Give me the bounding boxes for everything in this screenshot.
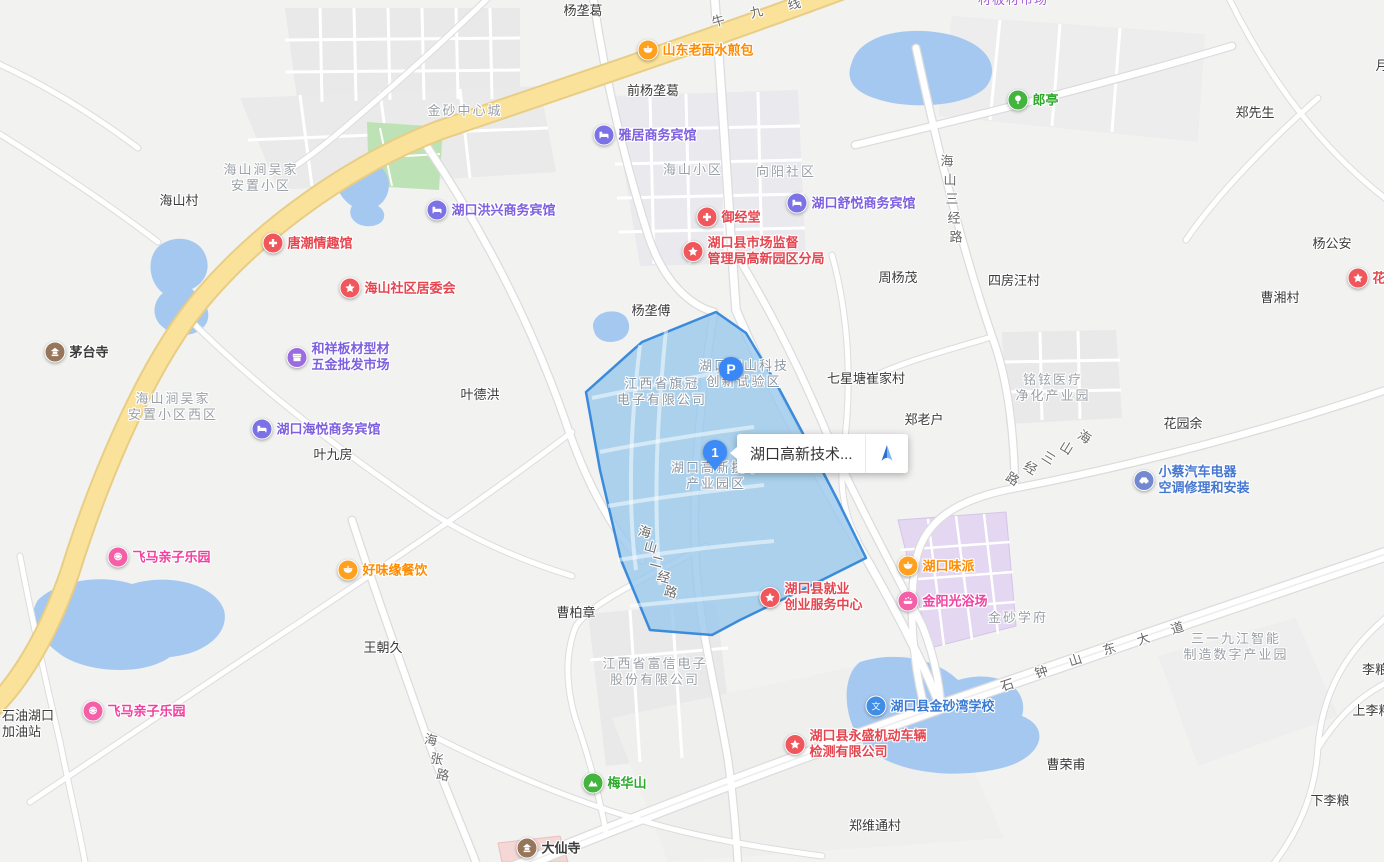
car-icon <box>1134 470 1155 491</box>
place-label: 海山村 <box>159 193 198 209</box>
area-label: 向阳社区 <box>756 164 816 180</box>
area-label: 海山涧吴家安置小区 <box>223 162 298 194</box>
poi-label: 唐潮情趣馆 <box>288 235 353 251</box>
road-label-char: 经 <box>947 208 960 227</box>
area-label: 金砂学府 <box>988 610 1048 626</box>
svg-text:文: 文 <box>871 701 880 712</box>
poi-label: 湖口味派 <box>923 558 975 574</box>
poi-hotel[interactable]: 湖口洪兴商务宾馆 <box>427 200 556 221</box>
star-icon <box>1348 268 1369 289</box>
star-icon <box>785 734 806 755</box>
place-label: 杨垄葛 <box>563 3 602 19</box>
road-label-char: 海 <box>1074 424 1095 447</box>
area-label: 铭铉医疗净化产业园 <box>1015 372 1090 404</box>
road-label-char: 钟 <box>1032 660 1050 682</box>
place-label: 四房汪村 <box>988 273 1040 289</box>
cross-icon <box>263 233 284 254</box>
area-label: 江西省富信电子股份有限公司 <box>602 656 707 688</box>
place-label: 杨垄傅 <box>631 303 670 319</box>
poi-label: 湖口海悦商务宾馆 <box>277 421 381 437</box>
tooltip-title: 湖口高新技术... <box>737 443 865 464</box>
bath-icon <box>898 591 919 612</box>
place-label: 郑维通村 <box>849 818 901 834</box>
poi-star[interactable]: 湖口县永盛机动车辆检测有限公司 <box>785 728 927 760</box>
place-label: 石油湖口加油站 <box>2 708 54 740</box>
poi-label: 湖口县市场监督管理局高新园区分局 <box>708 235 825 267</box>
poi-label: 海山社区居委会 <box>365 280 456 296</box>
fun-icon <box>108 547 129 568</box>
poi-shop[interactable]: 和祥板材型材五金批发市场 <box>287 341 390 373</box>
road-label-char: 牛 <box>709 9 727 31</box>
poi-star[interactable]: 海山社区居委会 <box>340 278 456 299</box>
place-label: 王朝久 <box>363 640 402 656</box>
road-label-char: 东 <box>1100 637 1118 659</box>
poi-label: 梅华山 <box>608 775 647 791</box>
poi-label: 湖口县永盛机动车辆检测有限公司 <box>810 728 927 760</box>
poi-label: 湖口县金砂湾学校 <box>891 698 995 714</box>
road-label-char: 海 <box>940 151 953 170</box>
place-label: 曹湘村 <box>1260 290 1299 306</box>
pin-number: 1 <box>711 445 718 460</box>
place-label: 郑老户 <box>904 412 943 428</box>
poi-label: 御经堂 <box>722 209 761 225</box>
road-label-char: 山 <box>1066 648 1084 670</box>
area-label: 海山小区 <box>663 162 723 178</box>
poi-label: 茅台寺 <box>70 344 109 360</box>
poi-fun[interactable]: 飞马亲子乐园 <box>83 701 186 722</box>
result-tooltip[interactable]: 湖口高新技术... <box>737 434 908 473</box>
parking-label: P <box>726 361 735 377</box>
mountain-icon <box>583 773 604 794</box>
place-label: 叶九房 <box>313 447 352 463</box>
poi-label: 和祥板材型材五金批发市场 <box>312 341 390 373</box>
poi-label: 湖口舒悦商务宾馆 <box>812 195 916 211</box>
star-icon <box>340 278 361 299</box>
place-label: 前杨垄葛 <box>627 83 679 99</box>
place-label: 下李粮 <box>1310 793 1349 809</box>
area-label: 金砂中心城 <box>427 103 502 119</box>
poi-hotel[interactable]: 湖口海悦商务宾馆 <box>252 419 381 440</box>
poi-label: 雅居商务宾馆 <box>619 127 697 143</box>
road-label-char: 海 <box>423 729 439 750</box>
hotel-icon <box>252 419 273 440</box>
area-label: 湖口海山科技创新试验区 <box>699 358 789 390</box>
road-label-char: 三 <box>1038 445 1059 468</box>
poi-label: 金阳光浴场 <box>923 593 988 609</box>
poi-cross[interactable]: 唐潮情趣馆 <box>263 233 353 254</box>
road-label-char: 三 <box>945 189 958 208</box>
parking-marker[interactable]: P <box>719 357 743 381</box>
hotel-icon <box>427 200 448 221</box>
hotel-icon <box>594 125 615 146</box>
food-icon <box>898 556 919 577</box>
poi-bath[interactable]: 金阳光浴场 <box>898 591 988 612</box>
road-label-char: 山 <box>943 170 956 189</box>
navigate-arrow-icon <box>877 444 897 464</box>
cross-icon <box>697 207 718 228</box>
road-label-char: 路 <box>435 764 451 785</box>
fun-icon <box>83 701 104 722</box>
food-icon <box>338 560 359 581</box>
poi-temple[interactable]: 茅台寺 <box>45 342 109 363</box>
poi-label: 山东老面水煎包 <box>663 42 754 58</box>
poi-car[interactable]: 小蔡汽车电器空调修理和安装 <box>1134 464 1250 496</box>
place-label: 曹柏章 <box>556 605 595 621</box>
poi-label: 郎亭 <box>1033 92 1059 108</box>
poi-star[interactable]: 湖口县就业创业服务中心 <box>760 581 863 613</box>
place-label: 叶德洪 <box>460 387 499 403</box>
poi-label: 花园 <box>1373 270 1384 286</box>
map-viewport[interactable]: 山东老面水煎包雅居商务宾馆郎亭湖口洪兴商务宾馆湖口舒悦商务宾馆御经堂唐潮情趣馆湖… <box>0 0 1384 862</box>
poi-label: 好味缘餐饮 <box>363 562 428 578</box>
place-label: 郑先生 <box>1235 105 1274 121</box>
tree-icon <box>1008 90 1029 111</box>
place-label: 周杨茂 <box>878 270 917 286</box>
poi-food[interactable]: 山东老面水煎包 <box>638 40 754 61</box>
hotel-icon <box>787 193 808 214</box>
star-icon <box>683 241 704 262</box>
poi-hotel[interactable]: 雅居商务宾馆 <box>594 125 697 146</box>
road-label-char: 石 <box>998 673 1016 695</box>
poi-label: 飞马亲子乐园 <box>133 549 211 565</box>
poi-cross[interactable]: 御经堂 <box>697 207 761 228</box>
area-label: 海山涧吴家安置小区西区 <box>128 391 218 423</box>
poi-label: 飞马亲子乐园 <box>108 703 186 719</box>
poi-temple[interactable]: 大仙寺 <box>517 838 581 859</box>
route-button[interactable] <box>865 434 908 473</box>
poi-star[interactable]: 花园 <box>1348 268 1384 289</box>
poi-label: 湖口洪兴商务宾馆 <box>452 202 556 218</box>
temple-icon <box>45 342 66 363</box>
poi-label: 小蔡汽车电器空调修理和安装 <box>1159 464 1250 496</box>
label-layer: 山东老面水煎包雅居商务宾馆郎亭湖口洪兴商务宾馆湖口舒悦商务宾馆御经堂唐潮情趣馆湖… <box>0 0 1384 862</box>
road-label-char: 九 <box>747 0 765 22</box>
poi-food[interactable]: 湖口味派 <box>898 556 975 577</box>
result-pin-1[interactable]: 1 <box>703 440 727 464</box>
poi-star[interactable]: 湖口县市场监督管理局高新园区分局 <box>683 235 825 267</box>
food-icon <box>638 40 659 61</box>
road-label-char: 线 <box>785 0 802 14</box>
road-label-char: 经 <box>1020 455 1041 478</box>
place-label: 上李粮 <box>1352 703 1384 719</box>
area-label: 江西省旗冠电子有限公司 <box>617 376 707 408</box>
road-label-char: 道 <box>1168 616 1186 638</box>
poi-tree[interactable]: 郎亭 <box>1008 90 1059 111</box>
place-label: 月 <box>1375 58 1384 74</box>
place-label: 材板材市场 <box>978 0 1048 8</box>
area-label: 三一九江智能制造数字产业园 <box>1183 631 1288 663</box>
place-label: 花园余 <box>1163 416 1202 432</box>
school-icon: 文 <box>866 696 887 717</box>
temple-icon <box>517 838 538 859</box>
place-label: 李粮 <box>1362 662 1384 678</box>
road-label-char: 路 <box>949 227 962 246</box>
poi-label: 湖口县就业创业服务中心 <box>785 581 863 613</box>
star-icon <box>760 587 781 608</box>
place-label: 曹荣甫 <box>1046 757 1085 773</box>
poi-hotel[interactable]: 湖口舒悦商务宾馆 <box>787 193 916 214</box>
road-label-char: 大 <box>1134 627 1152 649</box>
poi-school[interactable]: 文湖口县金砂湾学校 <box>866 696 995 717</box>
place-label: 七星塘崔家村 <box>827 371 905 387</box>
shop-icon <box>287 347 308 368</box>
poi-fun[interactable]: 飞马亲子乐园 <box>108 547 211 568</box>
poi-mountain[interactable]: 梅华山 <box>583 773 647 794</box>
place-label: 杨公安 <box>1312 236 1351 252</box>
poi-food[interactable]: 好味缘餐饮 <box>338 560 428 581</box>
poi-label: 大仙寺 <box>542 840 581 856</box>
